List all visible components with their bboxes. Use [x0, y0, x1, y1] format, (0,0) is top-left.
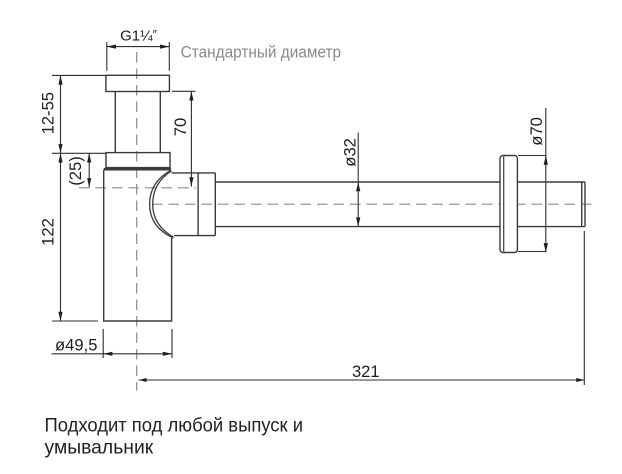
svg-text:Подходит под любой выпуск и: Подходит под любой выпуск и [45, 415, 304, 437]
svg-text:70: 70 [171, 118, 190, 136]
svg-text:321: 321 [352, 362, 380, 381]
svg-text:122: 122 [39, 218, 58, 246]
svg-text:Стандартный диаметр: Стандартный диаметр [181, 42, 342, 61]
svg-text:G1¼″: G1¼″ [120, 27, 158, 44]
svg-text:ø49,5: ø49,5 [55, 335, 97, 354]
svg-text:ø32: ø32 [341, 138, 360, 167]
svg-text:умывальник: умывальник [45, 436, 154, 458]
svg-text:ø70: ø70 [527, 117, 546, 146]
svg-text:12-55: 12-55 [39, 92, 58, 134]
svg-text:(25): (25) [66, 156, 85, 186]
